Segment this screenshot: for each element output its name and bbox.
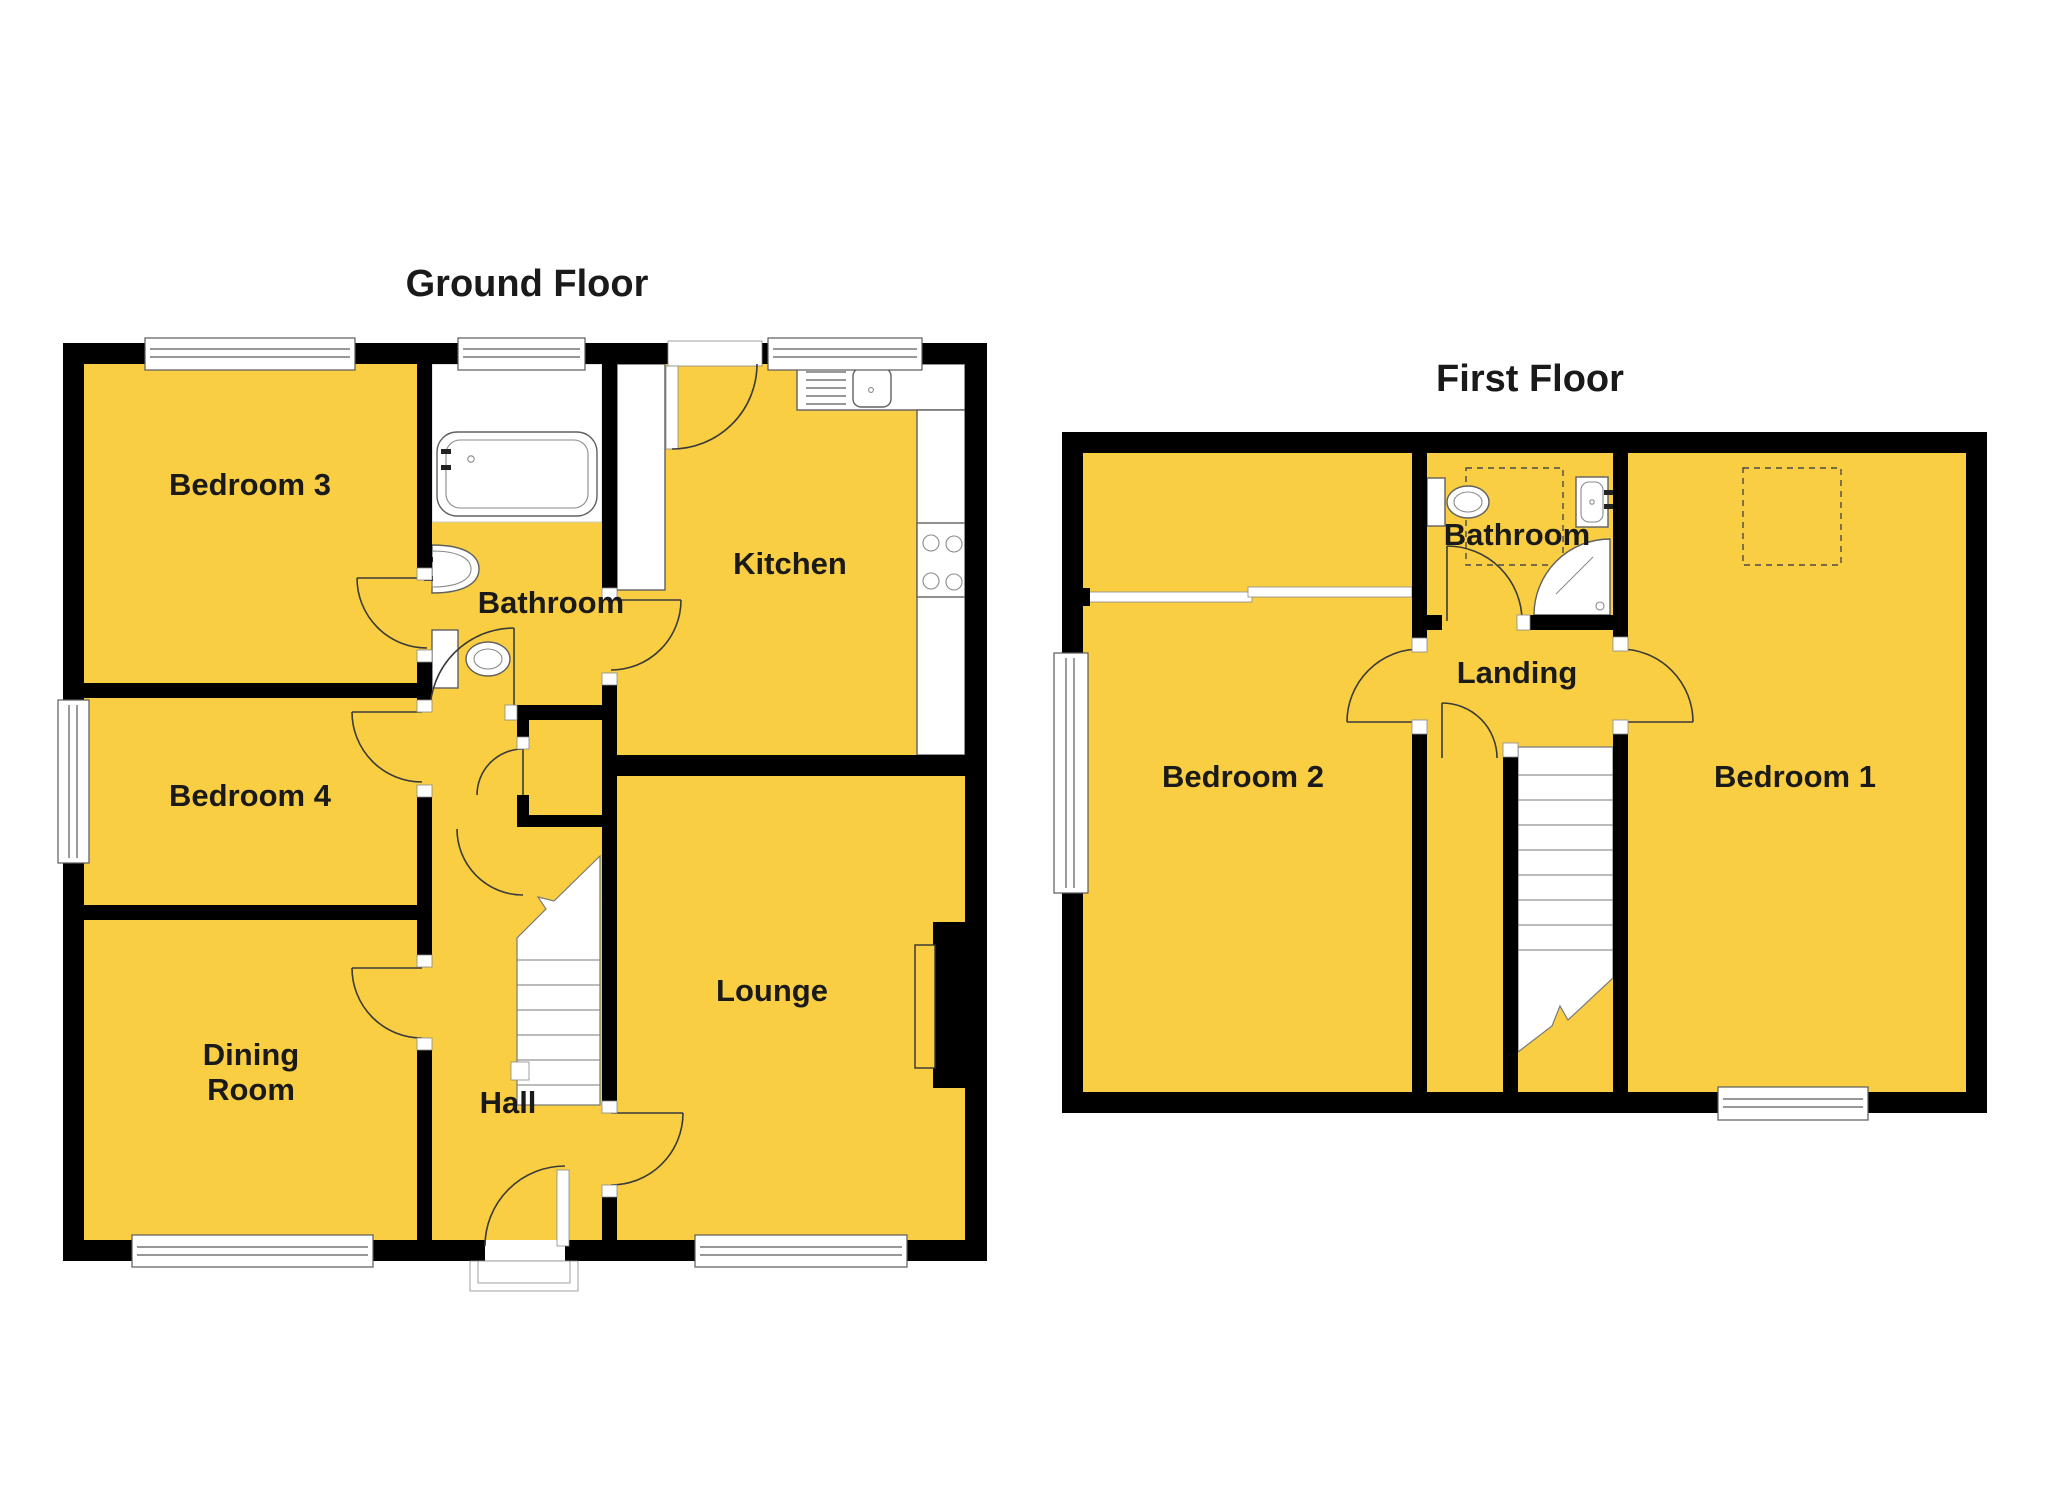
- window-lounge: [695, 1235, 907, 1267]
- bath-icon: [437, 432, 597, 516]
- wall-kitchen-hall: [602, 364, 617, 588]
- window-bedroom3: [145, 338, 355, 370]
- room-label-dining-line2: Room: [207, 1072, 295, 1107]
- room-label-lounge: Lounge: [716, 973, 828, 1008]
- wall-bed2-stairs: [1412, 734, 1427, 1092]
- ground-floor-plan: Ground Floor Bedroom 3 Bathroom Kitchen …: [58, 263, 987, 1291]
- room-label-bathroom-gf: Bathroom: [478, 585, 624, 620]
- room-label-bedroom2: Bedroom 2: [1162, 759, 1324, 794]
- window-kitchen: [768, 338, 922, 370]
- wall-bathroom-bottom: [517, 705, 602, 720]
- window-dining: [132, 1235, 373, 1267]
- floor-plan-page: Ground Floor Bedroom 3 Bathroom Kitchen …: [0, 0, 2048, 1489]
- wall-bathroom-bed1: [1613, 453, 1628, 637]
- wall-hall-lounge: [602, 685, 617, 1101]
- wall-cupboard-bottom: [517, 815, 602, 827]
- wall-stairwell-left: [1503, 757, 1518, 1092]
- wall-bed4-dining: [84, 905, 417, 920]
- room-label-bedroom1: Bedroom 1: [1714, 759, 1876, 794]
- wall-bathroom-bottom-ff: [1530, 615, 1628, 630]
- wall-bed3-bed4: [84, 683, 417, 698]
- room-label-kitchen: Kitchen: [733, 546, 847, 581]
- newel-post: [511, 1062, 529, 1080]
- room-label-landing: Landing: [1457, 655, 1578, 690]
- first-floor-title: First Floor: [1436, 358, 1624, 400]
- wall-bed3-bathroom: [417, 364, 432, 568]
- room-label-bedroom4: Bedroom 4: [169, 778, 332, 813]
- wall-stairs-bed1: [1613, 734, 1628, 1092]
- window-bedroom2: [1054, 653, 1088, 893]
- room-label-hall: Hall: [480, 1085, 537, 1120]
- floor-plan-drawing: Ground Floor Bedroom 3 Bathroom Kitchen …: [0, 0, 2048, 1489]
- window-bedroom1: [1718, 1087, 1868, 1120]
- ground-floor-title: Ground Floor: [406, 263, 649, 305]
- window-bathroom-gf: [458, 338, 585, 370]
- room-label-bedroom3: Bedroom 3: [169, 467, 331, 502]
- wall-bed2-bathroom: [1412, 453, 1427, 638]
- window-bedroom4: [58, 700, 89, 863]
- hob-icon: [917, 523, 965, 597]
- kitchen-left-unit: [617, 364, 665, 590]
- wall-kitchen-lounge: [617, 755, 965, 776]
- fireplace-icon: [915, 922, 965, 1088]
- first-floor-plan: First Floor Bedroom 2 Bathroom Landing B…: [1054, 358, 1987, 1120]
- room-label-bathroom-ff: Bathroom: [1444, 517, 1590, 552]
- room-label-dining-line1: Dining: [203, 1037, 299, 1072]
